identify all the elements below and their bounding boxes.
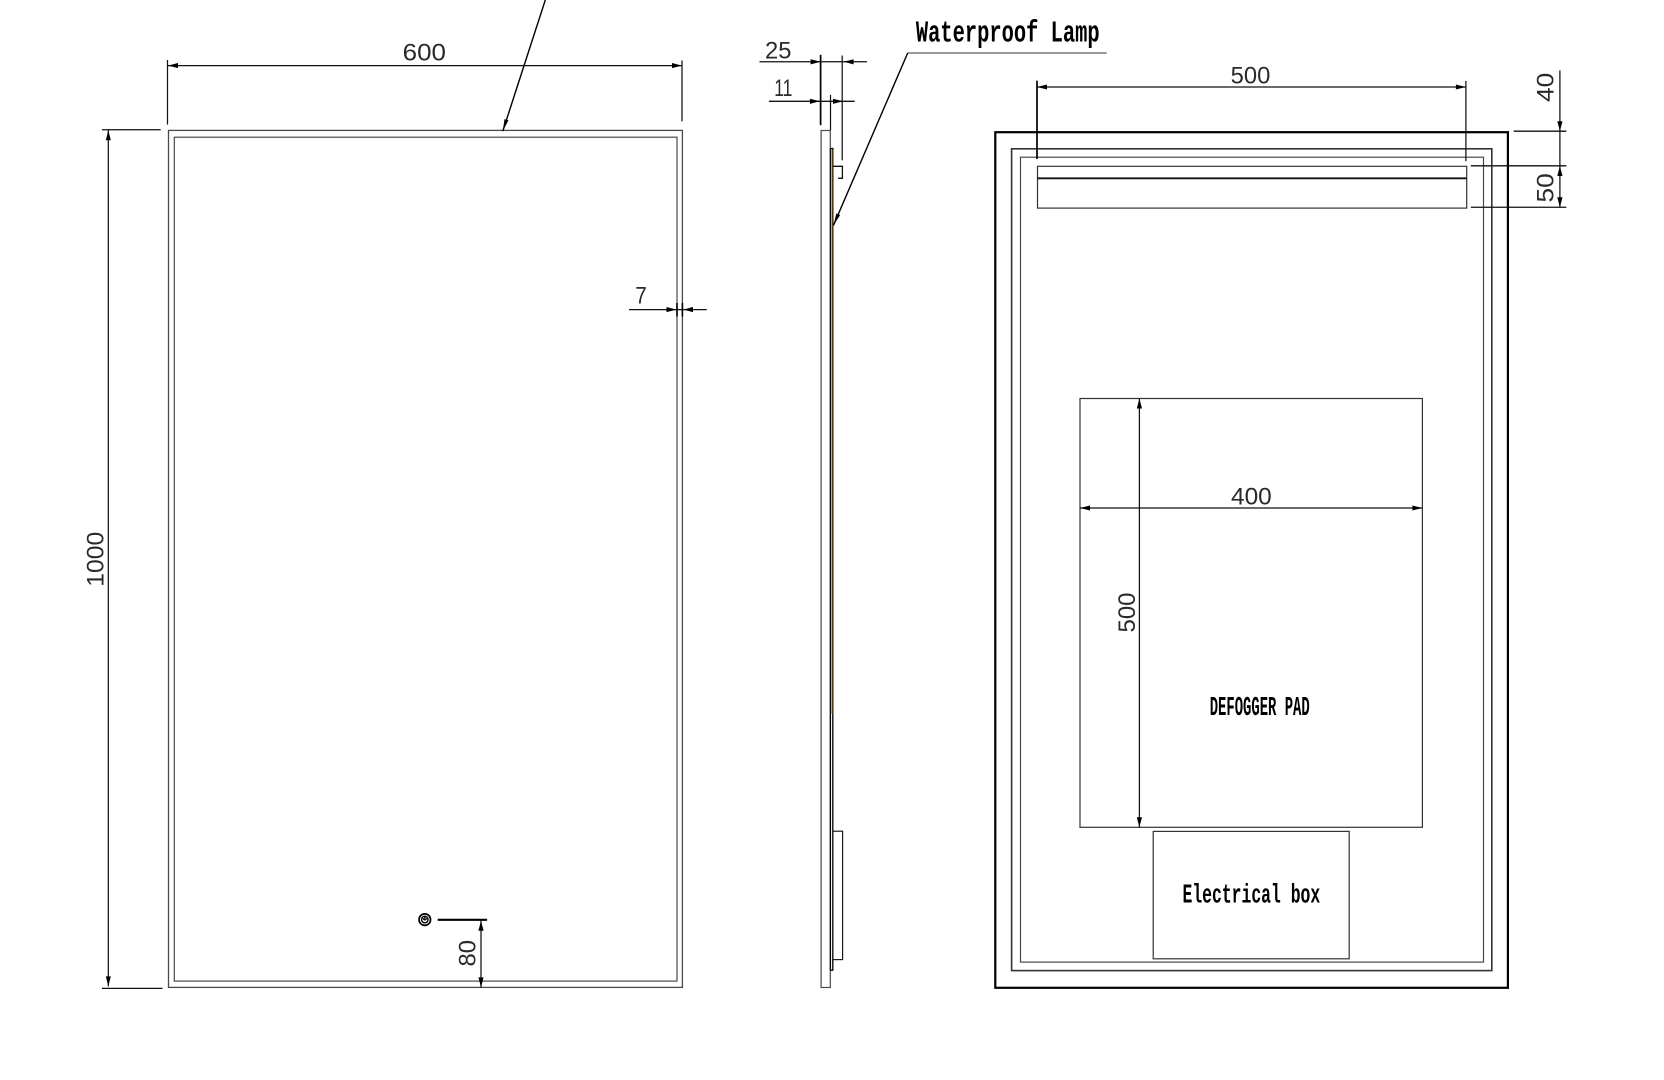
- svg-text:7: 7: [635, 283, 647, 310]
- svg-text:500: 500: [1231, 62, 1271, 89]
- svg-text:600: 600: [403, 39, 446, 66]
- svg-text:Waterproof Lamp: Waterproof Lamp: [916, 16, 1100, 51]
- svg-text:400: 400: [1231, 483, 1272, 510]
- svg-text:DEFOGGER PAD: DEFOGGER PAD: [1210, 694, 1310, 724]
- svg-text:50: 50: [1532, 173, 1559, 202]
- svg-text:500: 500: [1114, 593, 1141, 633]
- svg-text:Electrical box: Electrical box: [1183, 882, 1321, 912]
- svg-text:25: 25: [765, 37, 791, 64]
- svg-text:80: 80: [454, 940, 481, 967]
- svg-text:40: 40: [1532, 73, 1559, 102]
- svg-text:1000: 1000: [82, 532, 109, 587]
- svg-text:11: 11: [774, 75, 792, 102]
